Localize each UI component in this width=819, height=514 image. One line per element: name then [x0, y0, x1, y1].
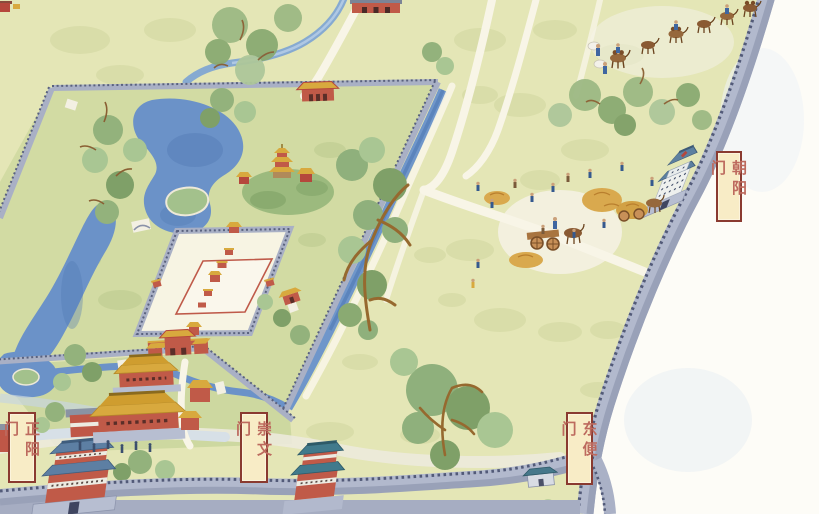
map-canvas: 朝阳门 正阳门 崇文门 东便门 [0, 0, 819, 514]
garden-north-gate [296, 81, 339, 101]
top-edge-building [350, 0, 402, 13]
pond-island [166, 188, 208, 216]
gate-label-dongbianmen: 东便门 [566, 412, 593, 485]
gate-label-chongwenmen: 崇文门 [240, 412, 268, 483]
watercolor-map-art [0, 0, 819, 514]
gate-label-zhengyangmen: 正阳门 [8, 412, 36, 483]
gate-label-chaoyangmen: 朝阳门 [716, 151, 742, 222]
